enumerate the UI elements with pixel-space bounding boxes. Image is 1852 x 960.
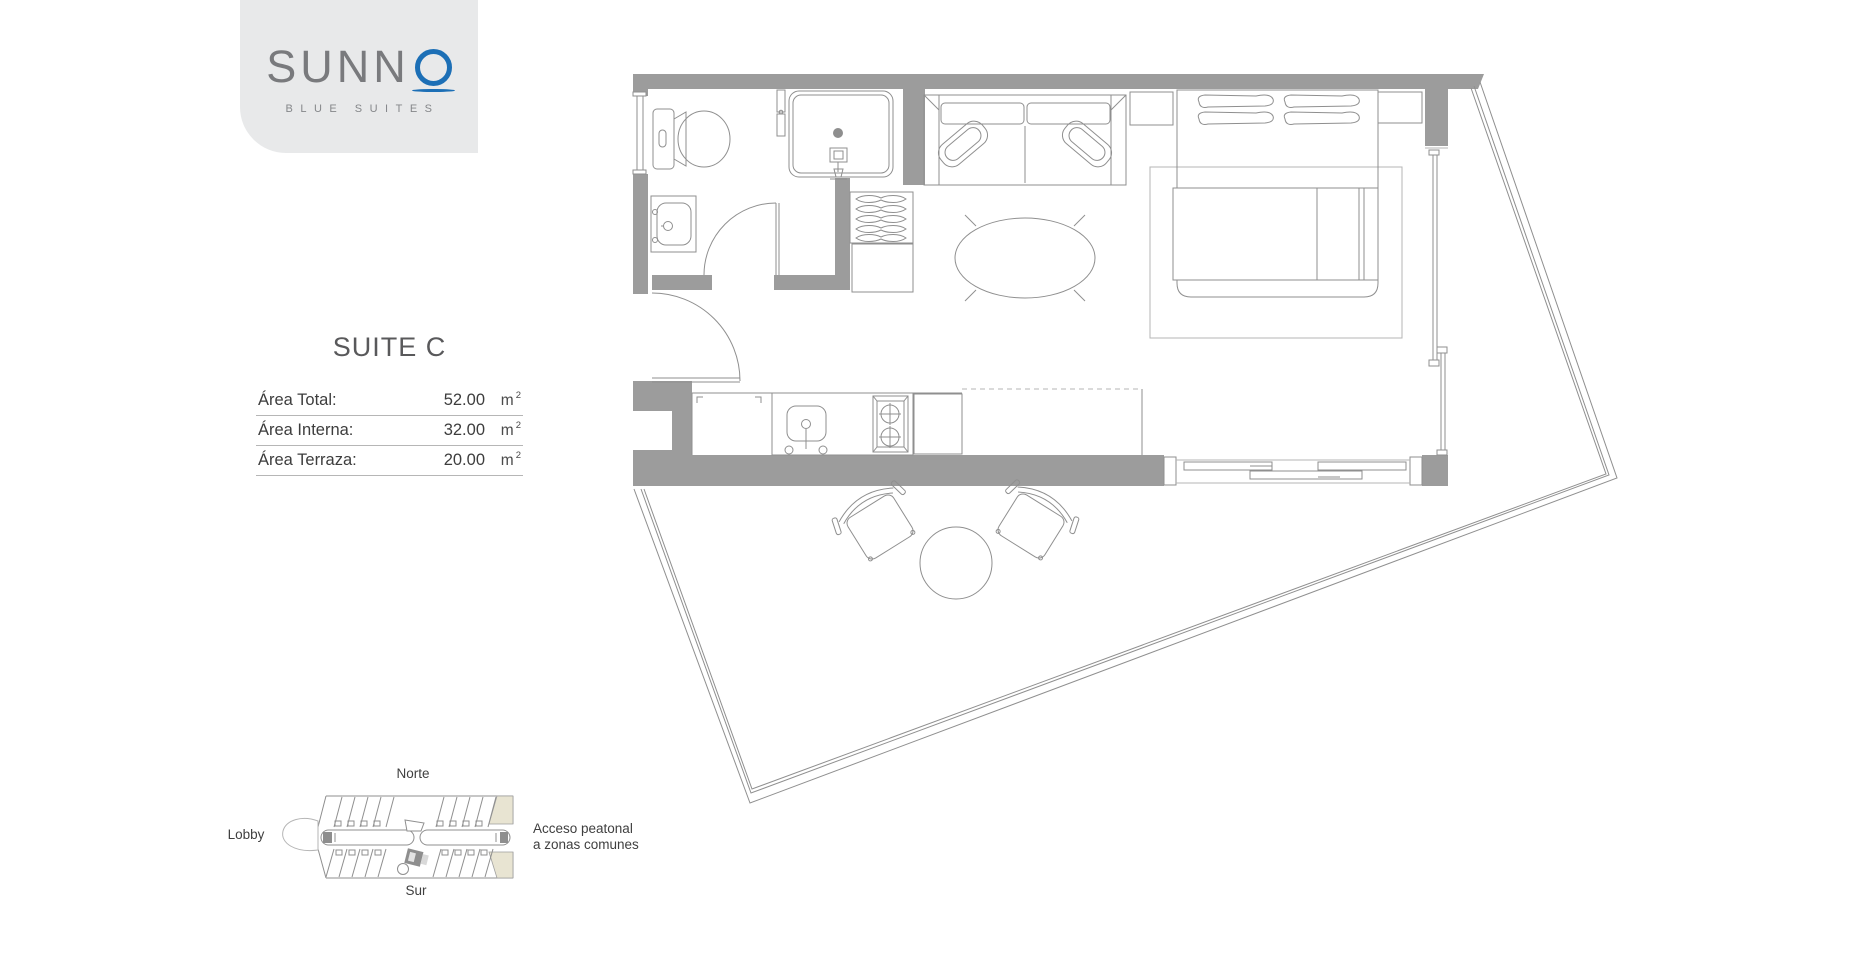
- wall-bottom-right: [1422, 455, 1448, 486]
- nightstand-left: [1130, 92, 1173, 125]
- locator-south-label: Sur: [405, 883, 427, 898]
- bedroom: [1130, 90, 1422, 338]
- bed: [1173, 90, 1378, 297]
- locator-north-label: Norte: [396, 766, 429, 781]
- terrace-table: [920, 527, 992, 599]
- openings: [633, 92, 1448, 485]
- kitchen: [692, 389, 1142, 455]
- bathroom-cabinet: [852, 244, 913, 292]
- wall-bottom: [633, 455, 1164, 486]
- living-room: [924, 95, 1126, 301]
- wall-bath-bottom-1: [652, 275, 712, 290]
- locator-lobby-shape: [283, 818, 318, 850]
- shower-glass-door: [777, 90, 785, 136]
- locator-access-label-2: a zonas comunes: [533, 837, 639, 852]
- terrace-chair-left: [827, 476, 928, 569]
- nightstand-right: [1378, 92, 1422, 123]
- bathroom-door: [704, 203, 779, 275]
- wall-top: [633, 74, 1484, 89]
- wall-bath-right: [835, 178, 850, 290]
- locator-access-label-1: Acceso peatonal: [533, 821, 633, 836]
- terrace-sliding-door: [1164, 457, 1422, 485]
- locator-lobby-label: Lobby: [228, 827, 265, 842]
- towel-shelf: [850, 192, 913, 243]
- wall-right-top: [1425, 89, 1448, 146]
- kitchen-cabinet: [914, 394, 962, 454]
- locator-building: [283, 796, 513, 878]
- bar-counter: [962, 389, 1142, 455]
- entry-door: [652, 293, 740, 382]
- locator-map: Norte Sur Lobby Acceso peatonal a zonas …: [228, 766, 639, 898]
- locator-corridor: [321, 830, 510, 845]
- dining-table: [955, 215, 1095, 301]
- sofa-pillow: [1058, 117, 1116, 172]
- floor-plan: Norte Sur Lobby Acceso peatonal a zonas …: [0, 0, 1852, 960]
- sofa-pillow: [934, 117, 992, 172]
- bathroom: [651, 90, 913, 292]
- sofa: [924, 95, 1126, 185]
- wall-niche: [630, 411, 672, 450]
- terrace-chair-right: [984, 475, 1085, 568]
- page: SUNN BLUE SUITES SUITE C Área Total: 52.…: [0, 0, 1852, 960]
- bathroom-window: [633, 92, 646, 174]
- shower: [789, 91, 893, 179]
- locator-walkway: [405, 820, 424, 831]
- wall-left-2: [633, 174, 648, 294]
- locator-common-area-bottom: [489, 852, 513, 878]
- locator-suite-marker: [398, 848, 429, 874]
- bedroom-window: [1425, 148, 1448, 455]
- bathroom-sink: [651, 196, 696, 252]
- bed-duvet: [1173, 188, 1378, 280]
- toilet: [653, 109, 730, 169]
- wall-shower-right: [903, 89, 925, 185]
